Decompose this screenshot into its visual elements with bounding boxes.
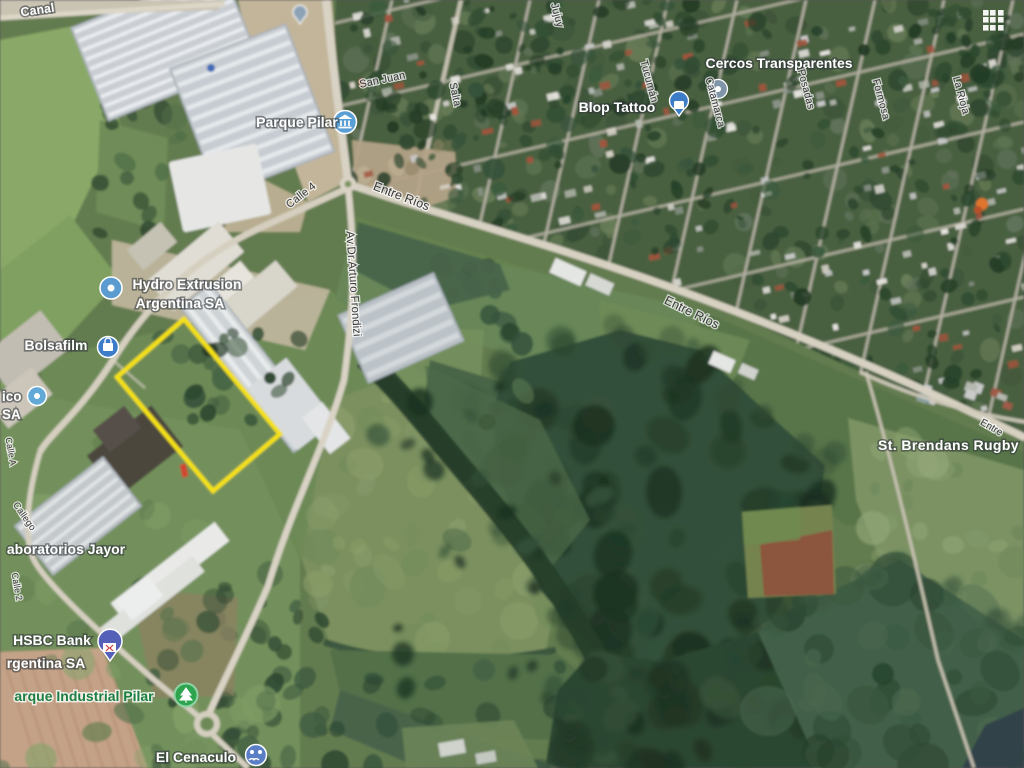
svg-text:El Cenaculo: El Cenaculo xyxy=(156,749,236,765)
svg-text:Blop Tattoo: Blop Tattoo xyxy=(579,99,656,115)
svg-text:HSBC Bank: HSBC Bank xyxy=(13,632,91,648)
svg-text:St. Brendans Rugby: St. Brendans Rugby xyxy=(878,437,1019,453)
svg-text:Hydro Extrusion: Hydro Extrusion xyxy=(133,276,242,292)
svg-text:arque Industrial Pilar: arque Industrial Pilar xyxy=(14,688,154,704)
svg-text:Bolsafilm: Bolsafilm xyxy=(24,337,87,353)
svg-text:Argentina SA: Argentina SA xyxy=(136,295,225,311)
svg-text:Cercos Transparentes: Cercos Transparentes xyxy=(705,55,852,71)
svg-text:Parque Pilar: Parque Pilar xyxy=(256,114,338,130)
svg-text:aboratorios Jayor: aboratorios Jayor xyxy=(7,541,126,557)
svg-text:rgentina SA: rgentina SA xyxy=(7,655,86,671)
svg-text:SA: SA xyxy=(2,407,21,422)
svg-text:ico: ico xyxy=(2,389,22,404)
